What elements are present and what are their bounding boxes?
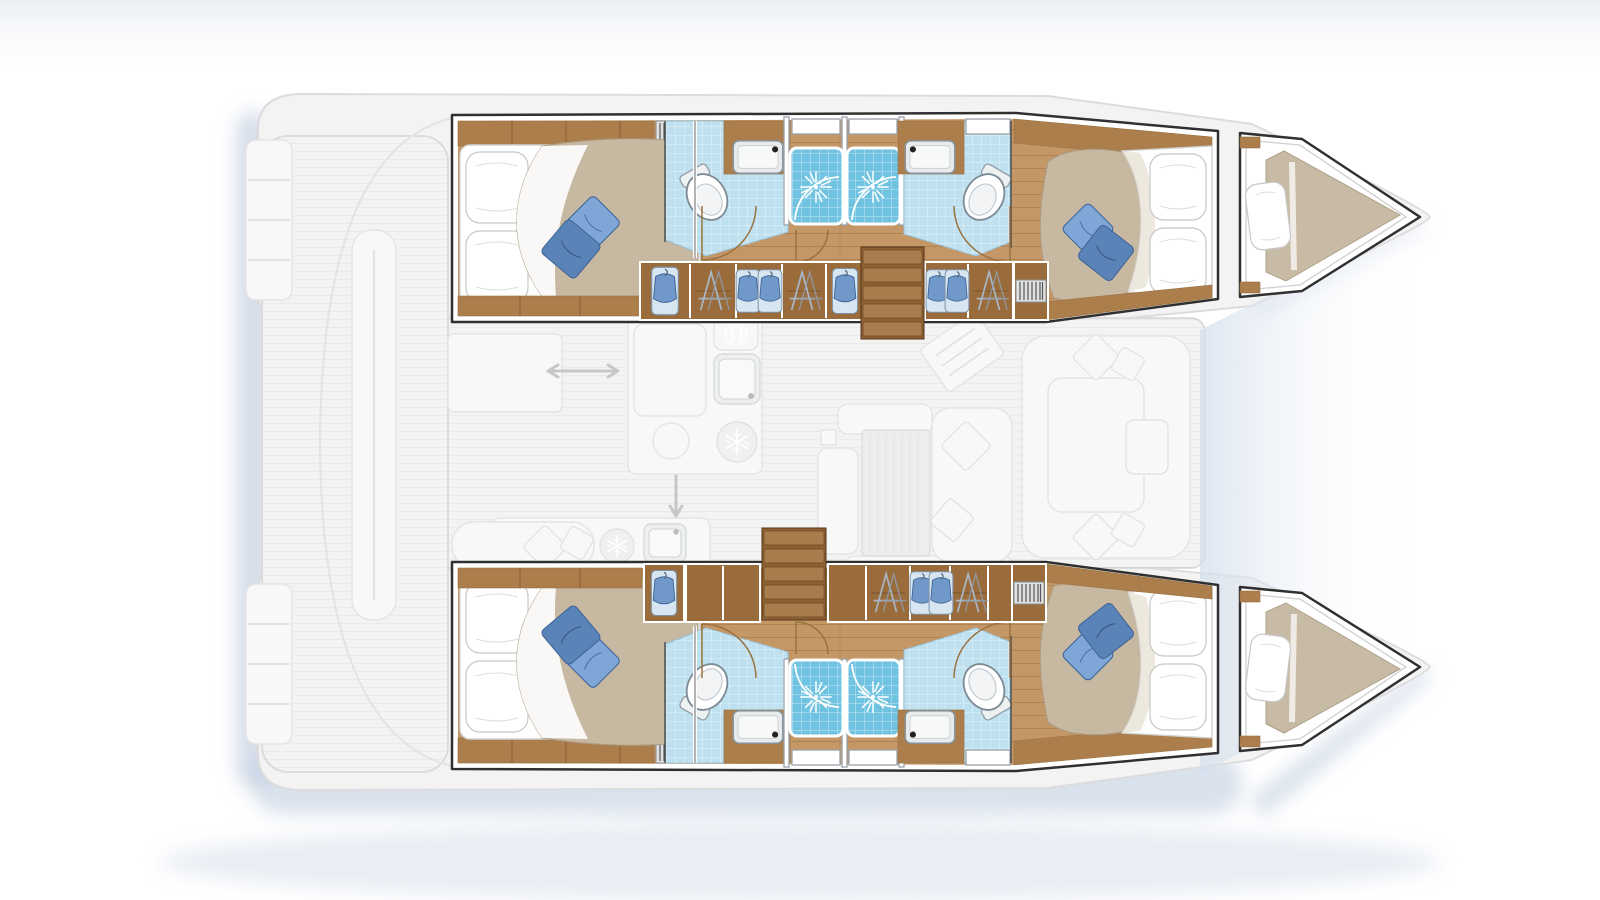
catamaran-floorplan-image [0,0,1600,900]
background-sky-tint [0,0,1600,80]
transom-steps-starboard [246,584,292,744]
vent-grille-icon [1012,564,1046,622]
garment-icon [736,270,760,313]
snowflake-fridge-icon [717,422,757,462]
garment-icon [652,267,679,315]
sink-icon [644,524,686,562]
companionway-steps [762,528,826,620]
sliding-door-ghost [448,334,562,412]
garment-icon [758,270,782,313]
companionway-steps [861,247,924,339]
garment-icon [651,571,676,616]
transom-steps-port [246,140,292,300]
galley-ghost [628,314,762,474]
sink-icon [714,354,760,404]
garment-icon [929,572,953,615]
catamaran-floorplan-page [0,0,1600,900]
vent-grille-icon [1014,262,1048,320]
mast-step-ghost [821,430,836,445]
dining-table-ghost [862,430,930,556]
garment-icon [832,269,857,314]
garment-icon [945,270,969,313]
snowflake-fridge-icon [600,529,634,563]
forward-cockpit-ghost [1022,333,1190,561]
